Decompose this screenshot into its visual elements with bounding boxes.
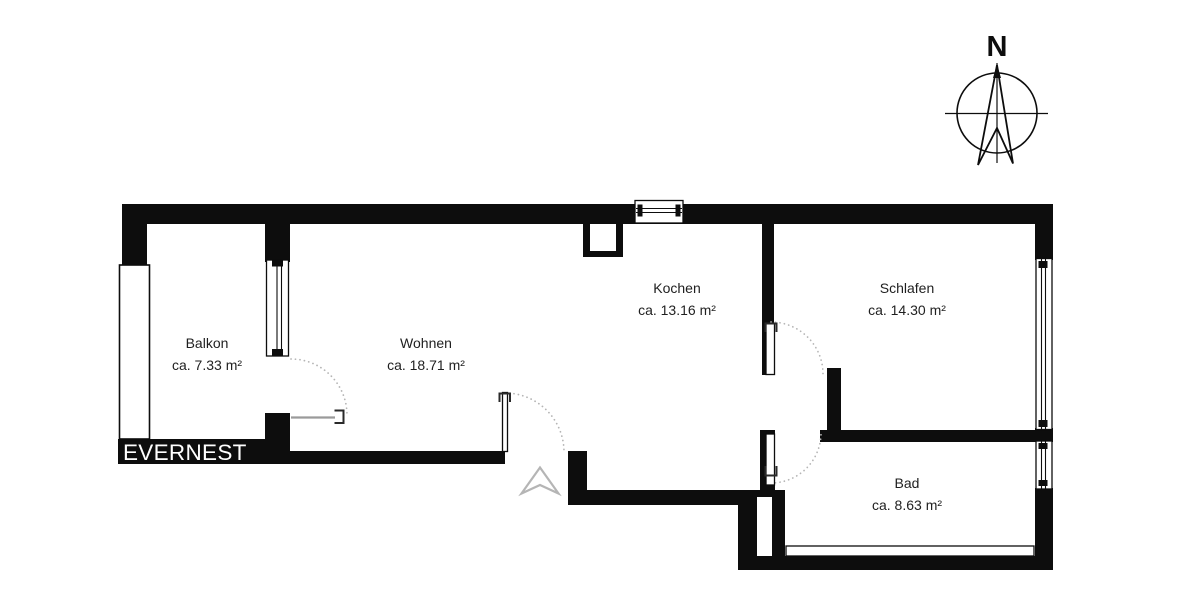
window-bad bbox=[1036, 441, 1052, 489]
wall-bottom-bad bbox=[738, 556, 1053, 570]
door-balkon bbox=[291, 359, 347, 423]
compass: N bbox=[945, 31, 1048, 165]
duct-shaft bbox=[757, 497, 772, 556]
window-schlafen bbox=[1036, 259, 1052, 430]
door-balkon-handle bbox=[335, 411, 344, 424]
room-area-wohnen: ca. 18.71 m² bbox=[387, 357, 465, 373]
room-label-schlafen: Schlafen bbox=[880, 280, 934, 296]
wall-wohnen-bottom bbox=[290, 451, 505, 464]
brand-logo: EVERNEST bbox=[123, 440, 247, 465]
compass-north-label: N bbox=[987, 31, 1008, 63]
wall-schlafen-door-stub bbox=[827, 368, 841, 432]
door-entrance bbox=[500, 393, 565, 453]
door-schlafen bbox=[766, 322, 824, 375]
window-kochen-top bbox=[635, 201, 683, 224]
room-area-schlafen: ca. 14.30 m² bbox=[868, 302, 946, 318]
floor-plan-page: Balkon ca. 7.33 m² Wohnen ca. 18.71 m² K… bbox=[0, 0, 1200, 600]
room-label-wohnen: Wohnen bbox=[400, 335, 452, 351]
walls bbox=[118, 204, 1053, 570]
bathtub-edge-line bbox=[786, 546, 1034, 556]
room-area-bad: ca. 8.63 m² bbox=[872, 497, 942, 513]
wall-left-upper bbox=[122, 204, 147, 266]
wall-right-top bbox=[1035, 204, 1053, 260]
room-area-balkon: ca. 7.33 m² bbox=[172, 357, 242, 373]
entrance-arrow bbox=[522, 468, 559, 494]
room-label-balkon: Balkon bbox=[186, 335, 229, 351]
door-bad bbox=[766, 433, 822, 485]
wall-schlafen-bad bbox=[820, 430, 1035, 442]
room-label-bad: Bad bbox=[895, 475, 920, 491]
compass-needle-tip bbox=[993, 64, 1001, 78]
room-label-kochen: Kochen bbox=[653, 280, 700, 296]
wall-balkon-divider-upper bbox=[265, 224, 290, 262]
window-balkon bbox=[267, 260, 289, 356]
chimney-shaft-inner bbox=[590, 224, 616, 251]
balcony-railing bbox=[120, 265, 150, 439]
room-area-kochen: ca. 13.16 m² bbox=[638, 302, 716, 318]
floor-plan: Balkon ca. 7.33 m² Wohnen ca. 18.71 m² K… bbox=[0, 0, 1200, 600]
